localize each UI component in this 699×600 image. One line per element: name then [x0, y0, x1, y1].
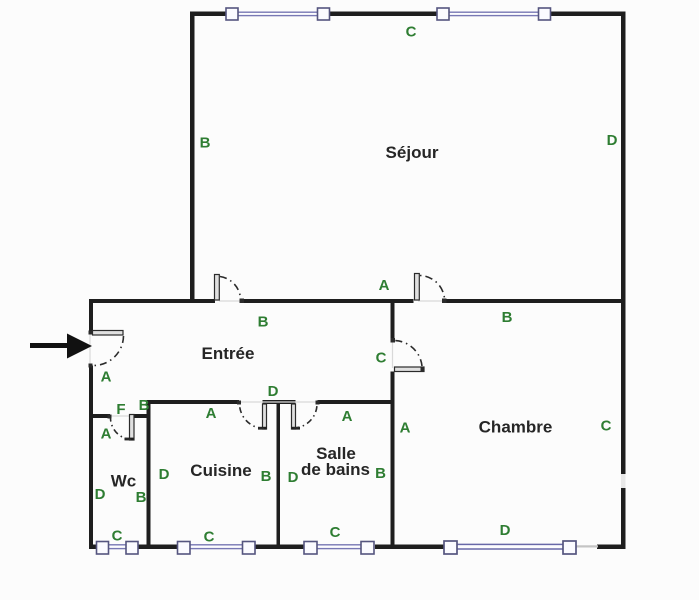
svg-text:F: F: [116, 401, 125, 418]
svg-text:Chambre: Chambre: [479, 418, 553, 437]
svg-text:C: C: [406, 24, 417, 41]
svg-text:D: D: [607, 132, 618, 149]
svg-text:Wc: Wc: [111, 472, 137, 491]
svg-text:Cuisine: Cuisine: [190, 461, 251, 480]
svg-text:D: D: [95, 486, 106, 503]
svg-text:D: D: [288, 469, 299, 486]
svg-text:B: B: [136, 489, 147, 506]
svg-text:C: C: [601, 418, 612, 435]
svg-text:A: A: [400, 420, 411, 437]
svg-text:A: A: [101, 369, 112, 386]
svg-text:B: B: [375, 465, 386, 482]
svg-text:C: C: [112, 528, 123, 545]
svg-text:D: D: [500, 522, 511, 539]
svg-text:A: A: [342, 408, 353, 425]
svg-text:A: A: [379, 277, 390, 294]
svg-text:B: B: [261, 468, 272, 485]
svg-text:B: B: [139, 397, 150, 414]
svg-text:Séjour: Séjour: [386, 143, 439, 162]
svg-text:B: B: [258, 314, 269, 331]
svg-text:B: B: [200, 135, 211, 152]
svg-text:Entrée: Entrée: [202, 344, 255, 363]
svg-text:A: A: [101, 426, 112, 443]
svg-text:D: D: [268, 383, 279, 400]
svg-text:de bains: de bains: [301, 460, 370, 479]
svg-text:C: C: [376, 350, 387, 367]
svg-text:A: A: [206, 405, 217, 422]
svg-text:C: C: [204, 529, 215, 546]
svg-text:D: D: [159, 466, 170, 483]
svg-text:B: B: [502, 309, 513, 326]
svg-text:C: C: [330, 524, 341, 541]
